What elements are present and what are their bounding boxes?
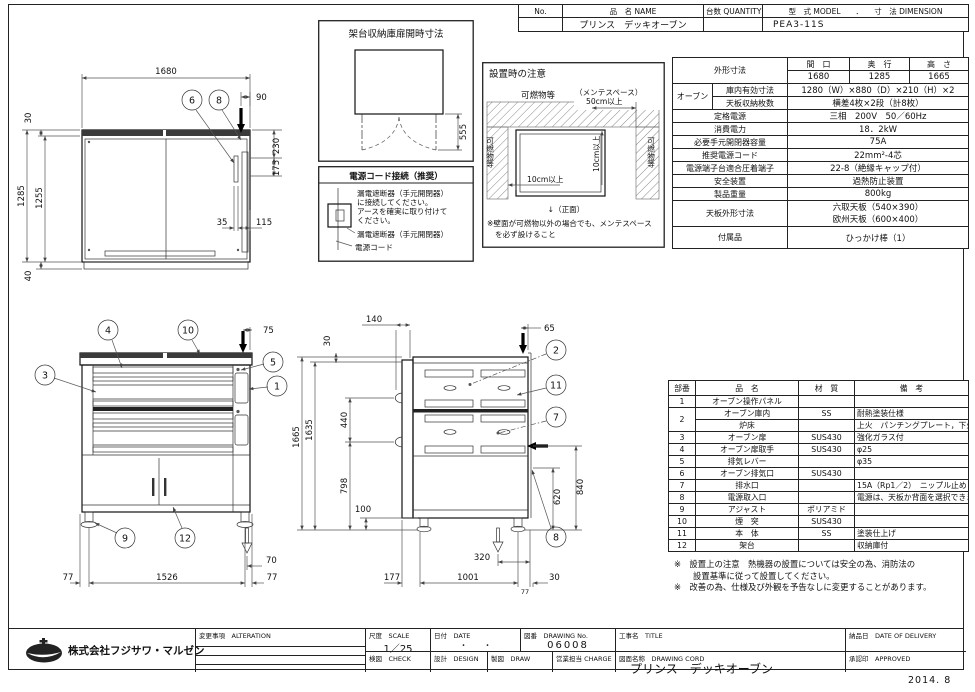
part-name: オーブン排気口 <box>696 468 799 480</box>
company-cell: 株式会社フジサワ・マルゼン <box>8 629 195 672</box>
part-material: SUS430 <box>799 432 855 444</box>
draw-cell: 製図 DRAW <box>487 651 552 672</box>
part-note: 電源は、天板か背面を選択できます <box>855 492 969 504</box>
install-note-line1: ※壁面が可燃物以外の場合でも、メンテスペース <box>487 218 652 228</box>
dim-label: 440 <box>340 412 350 428</box>
balloon-3: 3 <box>35 365 96 392</box>
table-row: 炉床 上火 パンチングプレート，下火 SS <box>669 420 969 432</box>
dim-label: 230 <box>272 138 282 154</box>
part-name: 炉床 <box>696 420 799 432</box>
balloon-4: 4 <box>98 320 122 368</box>
svg-text:12: 12 <box>179 534 191 545</box>
spec-rated-label: 定格電源 <box>673 110 788 123</box>
part-material <box>799 456 855 468</box>
part-note: 塗装仕上げ <box>855 528 969 540</box>
part-no: 8 <box>669 492 696 504</box>
table-row: 7 排水口 15A（Rp1／2） ニップル止め <box>669 480 969 492</box>
draw-label: 製図 DRAW <box>488 652 552 663</box>
table-row: 9 アジャスト ポリアミド <box>669 504 969 516</box>
part-no: 9 <box>669 504 696 516</box>
spec-outer-label: 外形寸法 <box>673 58 788 84</box>
svg-text:1: 1 <box>274 382 280 393</box>
note-line-2: 設置基準に従って設置してください。 <box>674 571 966 583</box>
part-material: SUS430 <box>799 468 855 480</box>
part-note <box>855 516 969 528</box>
header-qty-value <box>704 18 763 32</box>
table-row: 3 オーブン扉 SUS430 強化ガラス付 <box>669 432 969 444</box>
part-material <box>799 480 855 492</box>
dim-label: 75 <box>263 326 274 336</box>
part-name: オーブン操作パネル <box>696 396 799 408</box>
part-name: オーブン扉 <box>696 432 799 444</box>
cord-callout-label: 電源コード <box>355 243 393 252</box>
svg-text:3: 3 <box>42 371 48 382</box>
dim-label: 30 <box>24 113 34 124</box>
adjustable-foot-left <box>81 512 97 528</box>
delivery-cell: 納品日 DATE OF DELIVERY <box>845 629 966 651</box>
front-panel-side <box>402 360 413 518</box>
dim-label: 35 <box>217 218 228 228</box>
dim-label: 840 <box>576 479 586 495</box>
flammable-left-label: 可燃物等 <box>485 137 494 168</box>
front-direction-label: ↓（正面） <box>548 205 585 214</box>
approved-label: 承認印 APPROVED <box>846 652 966 663</box>
svg-text:10: 10 <box>182 326 194 337</box>
svg-text:4: 4 <box>105 326 111 337</box>
power-text-line1: 漏電遮断器（手元開閉器） <box>357 188 448 198</box>
table-row: 10 煙 突 SUS430 <box>669 516 969 528</box>
scale-label: 尺度 SCALE <box>366 629 430 640</box>
svg-text:6: 6 <box>189 96 195 107</box>
part-note: 耐熱塗装仕様 <box>855 408 969 420</box>
install-note-line2: を必ず設けること <box>495 229 556 239</box>
power-text-line3: アースを確実に取り付けて <box>357 206 447 216</box>
drawing-sheet: No. 品 名 NAME 台数 QUANTITY 型 式 MODEL ． 寸 法… <box>0 0 975 692</box>
part-no: 6 <box>669 468 696 480</box>
dim-label: 175 <box>272 160 282 176</box>
scale-cell: 尺度 SCALE 1／25 <box>365 629 430 651</box>
alteration-label: 変更事項 ALTERATION <box>196 629 365 640</box>
part-material <box>799 540 855 552</box>
note-line-3: ※ 改善の為、仕様及び外観を予告なしに変更することがあります。 <box>674 582 966 594</box>
part-note: 15A（Rp1／2） ニップル止め <box>855 480 969 492</box>
spec-traydim-line2: 欧州天板（600×400） <box>833 215 924 225</box>
table-row: 1 オーブン操作パネル <box>669 396 969 408</box>
install-title: 設置時の注意 <box>489 68 546 80</box>
svg-text:7: 7 <box>553 413 559 424</box>
dim-label: 620 <box>553 489 563 505</box>
pilot-lamp <box>236 410 239 413</box>
spec-width-value: 1680 <box>788 71 850 84</box>
front-view-drawing: 75 70 77 1526 77 4 10 <box>12 312 310 598</box>
part-note <box>855 396 969 408</box>
pilot-lamp <box>236 368 239 371</box>
dim-label: 1680 <box>155 67 177 77</box>
approved-cell: 承認印 APPROVED <box>845 651 966 672</box>
dim-label: 555 <box>459 124 469 140</box>
part-name: 排気レバー <box>696 456 799 468</box>
part-note <box>855 504 969 516</box>
spec-depth-value: 1285 <box>850 71 910 84</box>
part-no: 10 <box>669 516 696 528</box>
spec-cord-value: 22mm²-4芯 <box>788 149 969 162</box>
part-no: 1 <box>669 396 696 408</box>
spec-breaker-label: 必要手元開閉器容量 <box>673 136 788 149</box>
header-model-label: 型 式 MODEL ． 寸 法 DIMENSION <box>763 5 969 18</box>
svg-text:2: 2 <box>553 346 559 357</box>
part-material: SUS430 <box>799 516 855 528</box>
dim-label: 77 <box>63 573 74 583</box>
spec-cord-label: 推奨電源コード <box>673 149 788 162</box>
svg-text:11: 11 <box>550 381 562 392</box>
balloon-12: 12 <box>173 507 195 548</box>
part-name: オーブン扉取手 <box>696 444 799 456</box>
exhaust-outlet-plan <box>234 156 238 182</box>
check-label: 検図 CHECK <box>366 652 430 663</box>
spec-accessory-label: 付属品 <box>673 227 788 249</box>
dim-label: 320 <box>474 553 490 563</box>
caution-notes: ※ 設置上の注意 熱機器の設置については安全の為、消防法の 設置基準に従って設置… <box>674 559 966 594</box>
spec-consumption-value: 18．2kW <box>788 123 969 136</box>
part-note: φ25 <box>855 444 969 456</box>
spec-accessory-value: ひっかけ棒（1） <box>788 227 969 249</box>
part-material <box>799 492 855 504</box>
power-text-line2: に接続してください。 <box>357 197 432 207</box>
drawing-no-label: 図番 DRAWING No. <box>521 629 615 640</box>
part-material: SS <box>799 528 855 540</box>
part-no: 12 <box>669 540 696 552</box>
issue-date: 2014. 8 <box>908 675 951 686</box>
svg-text:8: 8 <box>553 533 559 544</box>
spec-table: 外形寸法 間 口 奥 行 高 さ 1680 1285 1665 オーブン 庫内有… <box>672 57 969 249</box>
adjustable-foot <box>511 518 525 532</box>
date-label: 日付 DATE <box>431 629 520 640</box>
cabinet-handle <box>164 478 166 496</box>
part-name: アジャスト <box>696 504 799 516</box>
flammable-top-label: 可燃物等 <box>521 90 556 101</box>
header-name-label: 品 名 NAME <box>563 5 704 18</box>
balloon-11: 11 <box>517 375 566 395</box>
part-name: オーブン庫内 <box>696 408 799 420</box>
date-cell: 日付 DATE ・ ・ <box>430 629 520 651</box>
part-name: 架台 <box>696 540 799 552</box>
dim-label: 70 <box>266 556 277 566</box>
deck-divider <box>413 409 528 413</box>
door-handle-side <box>395 393 402 403</box>
part-no: 2 <box>669 408 696 432</box>
dim-label: 177 <box>384 573 400 583</box>
balloon-9: 9 <box>95 523 135 548</box>
spec-safety-label: 安全装置 <box>673 175 788 188</box>
model-number: PEA3-11S <box>763 18 969 32</box>
dim-label: 140 <box>366 315 382 325</box>
title-cell: 工事名 TITLE <box>615 629 845 651</box>
door-handle-side <box>395 437 402 447</box>
table-row: 12 架台 収納庫付 <box>669 540 969 552</box>
part-note <box>855 468 969 480</box>
clearance-h-label: 10cm以上 <box>527 175 564 184</box>
dim-label: 65 <box>544 324 555 334</box>
svg-text:9: 9 <box>122 534 128 545</box>
power-box-title: 電源コード接続（推奨） <box>349 171 443 182</box>
spec-weight-value: 800kg <box>788 188 969 201</box>
part-name: 電源取入口 <box>696 492 799 504</box>
title-label: 工事名 TITLE <box>616 629 845 640</box>
spec-traydim-value: 六取天板（540×390） 欧州天板（600×400） <box>788 201 969 227</box>
drawing-no-value: 06008 <box>521 640 615 651</box>
dim-label: 77 <box>521 588 529 596</box>
part-no: 5 <box>669 456 696 468</box>
dim-label: 90 <box>256 93 267 103</box>
dim-label: 1635 <box>305 419 315 441</box>
spec-inner-label: 庫内有効寸法 <box>713 84 788 97</box>
table-row: 11 本 体 SS 塗装仕上げ <box>669 528 969 540</box>
svg-text:5: 5 <box>270 358 276 369</box>
spec-tray-label: 天板収納枚数 <box>713 97 788 110</box>
table-row: 5 排気レバー φ35 <box>669 456 969 468</box>
spec-oven-label: オーブン <box>673 84 713 110</box>
parts-table: 部番 品 名 材 質 備 考 1 オーブン操作パネル 2 オーブン庫内 SS 耐… <box>668 380 969 552</box>
part-name: 煙 突 <box>696 516 799 528</box>
dim-label: 798 <box>340 478 350 494</box>
oven-side-outline <box>413 357 528 518</box>
parts-header-mat: 材 質 <box>799 381 855 396</box>
part-note: 収納庫付 <box>855 540 969 552</box>
alteration-cell: 変更事項 ALTERATION <box>195 629 365 672</box>
spec-height-value: 1665 <box>910 71 969 84</box>
spec-terminal-value: 22-8（絶縁キャップ付） <box>788 162 969 175</box>
spec-rated-value: 三相 200V 50／60Hz <box>788 110 969 123</box>
header-table: No. 品 名 NAME 台数 QUANTITY 型 式 MODEL ． 寸 法… <box>518 4 969 32</box>
spec-depth-header: 奥 行 <box>850 58 910 71</box>
header-qty-label: 台数 QUANTITY <box>704 5 763 18</box>
control-panel-upper <box>235 373 248 403</box>
control-panel-lower <box>235 415 248 445</box>
spec-terminal-label: 電源端子台適合圧着端子 <box>673 162 788 175</box>
side-view-drawing: 140 30 65 1665 1635 440 798 100 840 620 <box>282 312 615 602</box>
svg-text:8: 8 <box>216 96 222 107</box>
spec-width-header: 間 口 <box>788 58 850 71</box>
spec-tray-value: 横差4枚×2段（計8枚） <box>788 97 969 110</box>
header-no-label: No. <box>519 5 563 18</box>
part-material: SUS430 <box>799 444 855 456</box>
spec-height-header: 高 さ <box>910 58 969 71</box>
dim-label: 40 <box>24 271 34 282</box>
power-cord-box: 電源コード接続（推奨） 漏電遮断器（手元開閉器） に接続してください。 アースを… <box>318 166 474 262</box>
parts-header-name: 品 名 <box>696 381 799 396</box>
part-note: 上火 パンチングプレート，下火 SS <box>855 420 969 432</box>
table-row: 6 オーブン排気口 SUS430 <box>669 468 969 480</box>
drawing-name-cell: 図面名称 DRAWING CORD プリンス デッキオーブン <box>615 651 845 672</box>
delivery-label: 納品日 DATE OF DELIVERY <box>846 629 966 640</box>
check-cell: 検図 CHECK <box>365 651 430 672</box>
cabinet-handle <box>152 478 154 496</box>
adjustable-foot <box>417 518 431 532</box>
dim-label: 1255 <box>35 187 45 209</box>
breaker-callout-label: 漏電遮断器（手元開閉器） <box>357 229 448 239</box>
design-cell: 設計 DESIGN <box>430 651 487 672</box>
spec-breaker-value: 75A <box>788 136 969 149</box>
part-no: 11 <box>669 528 696 540</box>
charge-cell: 営業担当 CHARGE <box>552 651 615 672</box>
power-text-line4: ください。 <box>357 216 395 225</box>
rack-box-title: 架台収納庫扉開時寸法 <box>348 28 443 40</box>
part-material <box>799 420 855 432</box>
charge-label: 営業担当 CHARGE <box>553 652 615 663</box>
dim-label: 1285 <box>17 185 27 207</box>
drain-arrow <box>493 528 503 552</box>
part-name: 本 体 <box>696 528 799 540</box>
spec-consumption-label: 消費電力 <box>673 123 788 136</box>
deck-divider <box>93 407 233 411</box>
part-no: 3 <box>669 432 696 444</box>
date-value: ・ ・ <box>431 640 520 651</box>
company-logo-icon <box>24 638 64 664</box>
drawing-name-value: プリンス デッキオーブン <box>630 660 773 677</box>
product-name: プリンス デッキオーブン <box>563 18 704 32</box>
dim-label: 30 <box>549 573 560 583</box>
balloon-10: 10 <box>178 320 200 354</box>
spec-traydim-line1: 六取天板（540×390） <box>833 203 924 213</box>
dim-label: 77 <box>267 573 278 583</box>
part-note: φ35 <box>855 456 969 468</box>
title-block: 株式会社フジサワ・マルゼン 変更事項 ALTERATION 尺度 SCALE 1… <box>8 628 964 671</box>
drain-arrow <box>242 528 252 553</box>
parts-header-no: 部番 <box>669 381 696 396</box>
dim-label: 1001 <box>457 573 479 583</box>
design-label: 設計 DESIGN <box>431 652 487 663</box>
spec-safety-value: 過熱防止装置 <box>788 175 969 188</box>
dim-label: 115 <box>256 218 272 228</box>
dim-label: 30 <box>323 336 333 347</box>
installation-caution-box: 設置時の注意 （メンテスペース） 50cm以上 可燃物等 可燃物等 可燃物等 1… <box>482 62 665 248</box>
header-no-value <box>519 18 563 32</box>
note-line-1: ※ 設置上の注意 熱機器の設置については安全の為、消防法の <box>674 559 966 571</box>
dim-label: 100 <box>355 505 371 515</box>
table-row: 2 オーブン庫内 SS 耐熱塗装仕様 <box>669 408 969 420</box>
front-vent-strip <box>105 251 215 256</box>
parts-header-note: 備 考 <box>855 381 969 396</box>
part-material <box>799 396 855 408</box>
drawing-no-cell: 図番 DRAWING No. 06008 <box>520 629 615 651</box>
part-note: 強化ガラス付 <box>855 432 969 444</box>
spec-inner-value: 1280（W）×880（D）×210（H）×2 <box>788 84 969 97</box>
clearance-v-label: 10cm以上 <box>592 135 601 172</box>
adjustable-foot-right <box>237 512 253 528</box>
plan-view-drawing: 1680 90 30 1285 1255 40 230 175 35 115 6 <box>12 50 308 308</box>
spec-traydim-label: 天板外形寸法 <box>673 201 788 227</box>
maintenance-space-label: （メンテスペース） <box>575 88 642 97</box>
balloon-6: 6 <box>182 90 234 163</box>
maintenance-dim-label: 50cm以上 <box>586 97 623 106</box>
spec-weight-label: 製品重量 <box>673 188 788 201</box>
table-row: 8 電源取入口 電源は、天板か背面を選択できます <box>669 492 969 504</box>
rack-door-open-box: 架台収納庫扉開時寸法 555 <box>318 20 474 162</box>
balloon-8: 8 <box>532 470 566 547</box>
dim-label: 1665 <box>292 426 302 448</box>
company-name: 株式会社フジサワ・マルゼン <box>68 643 205 658</box>
part-name: 排水口 <box>696 480 799 492</box>
part-no: 4 <box>669 444 696 456</box>
part-no: 7 <box>669 480 696 492</box>
dim-label: 1526 <box>156 573 178 583</box>
part-material: ポリアミド <box>799 504 855 516</box>
part-material: SS <box>799 408 855 420</box>
table-row: 4 オーブン扉取手 SUS430 φ25 <box>669 444 969 456</box>
flammable-right-label: 可燃物等 <box>646 137 655 168</box>
